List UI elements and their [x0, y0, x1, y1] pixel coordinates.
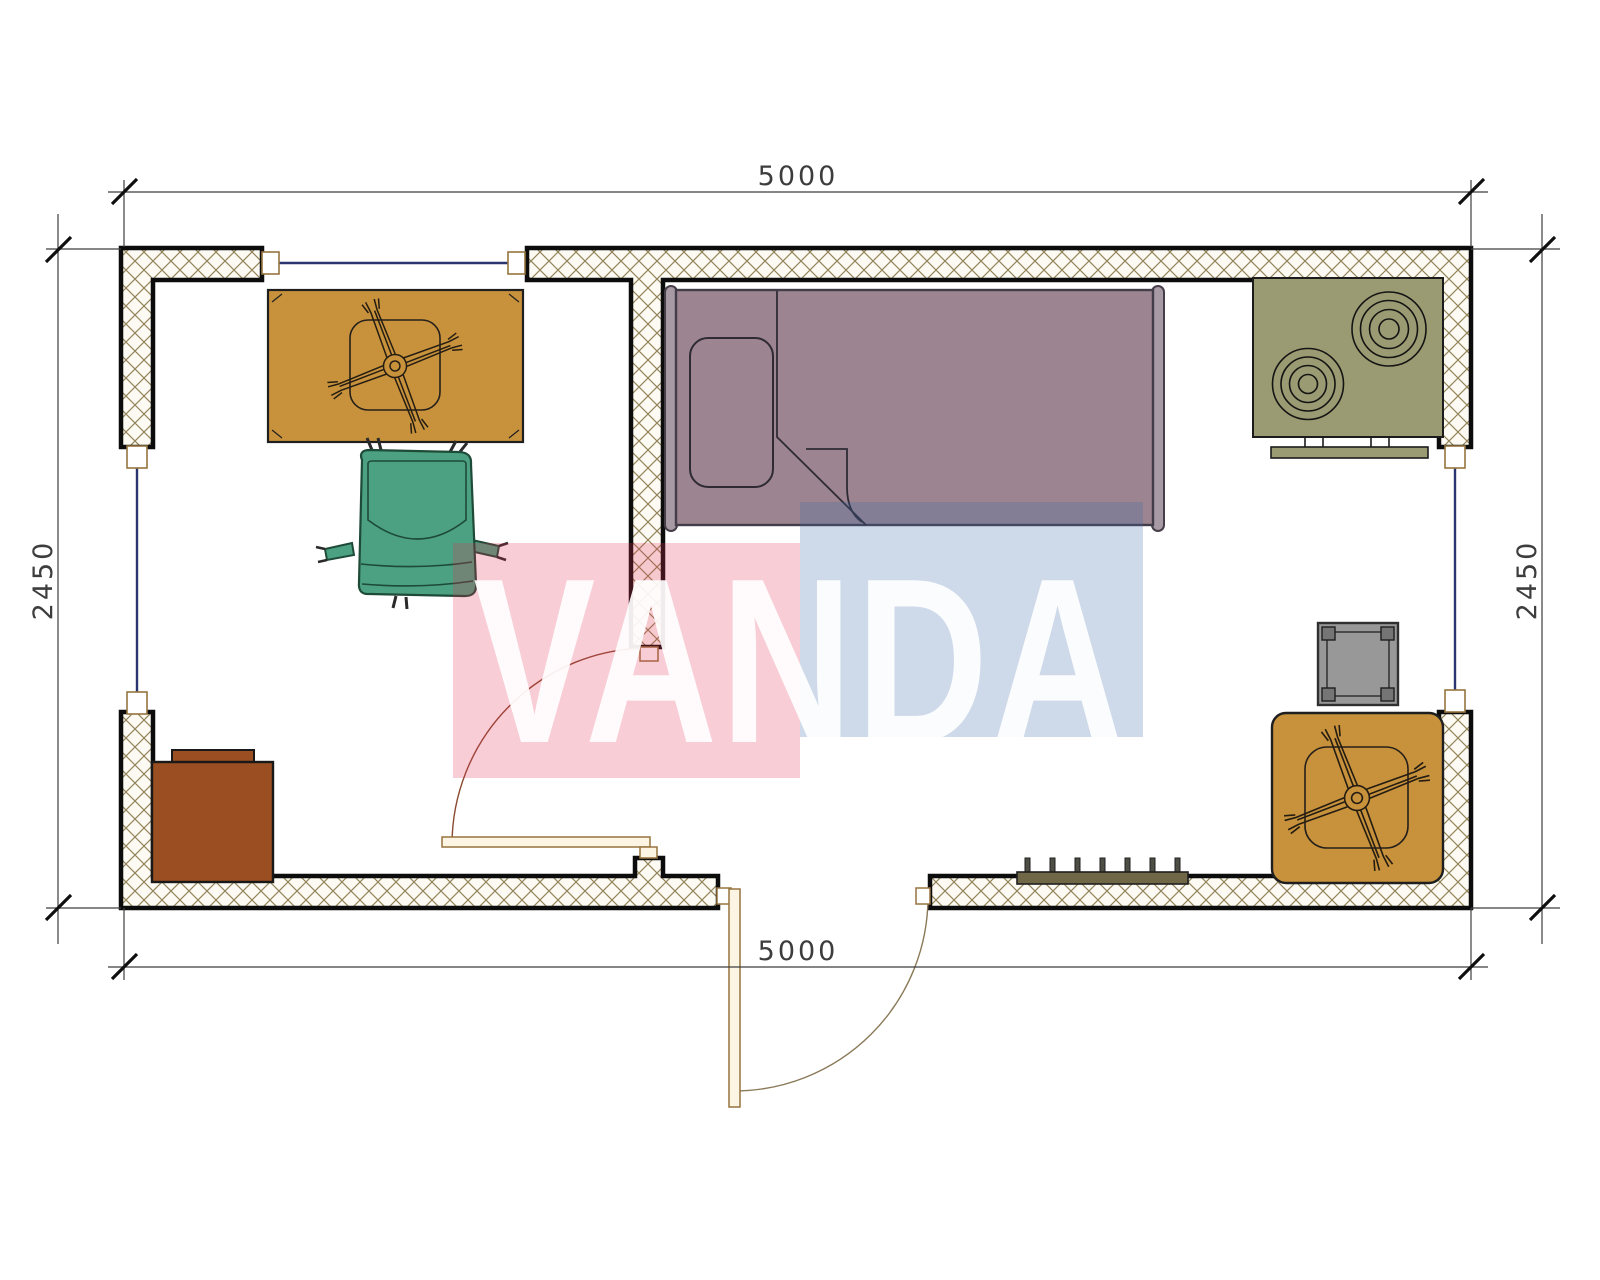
- stove-control-panel: [1271, 447, 1428, 458]
- cabinet-body: [152, 762, 273, 882]
- corner-table: [1259, 700, 1454, 895]
- window-jamb-marker: [127, 446, 147, 468]
- dining-table: [268, 276, 523, 457]
- window-top: [262, 252, 525, 274]
- wall-top-left: [121, 248, 262, 447]
- entrance-door: [717, 888, 930, 1107]
- radiator-body: [1017, 872, 1188, 884]
- radiator: [1017, 858, 1188, 884]
- dimension-label-top: 5000: [758, 161, 839, 192]
- dimension-label-right: 2450: [1512, 540, 1543, 621]
- watermark: VANDA: [453, 502, 1143, 792]
- stove-panel-links: [1305, 437, 1389, 447]
- window-jamb-marker: [508, 252, 525, 274]
- dimension-label-bottom: 5000: [758, 936, 839, 967]
- door-leaf: [729, 889, 740, 1107]
- window-jamb-marker: [1445, 690, 1465, 712]
- chair-armrest-left: [325, 543, 354, 560]
- table-top: [1272, 713, 1443, 883]
- single-bed: [665, 286, 1164, 531]
- bed-mattress: [676, 290, 1153, 525]
- dimension-label-left: 2450: [28, 540, 59, 621]
- door-jamb-marker: [916, 888, 930, 904]
- window-jamb-marker: [1445, 446, 1465, 468]
- window-right: [1445, 446, 1465, 712]
- floor-plan-canvas: 5000 5000 2450 2450 VANDA: [0, 0, 1600, 1280]
- radiator-fins: [1025, 858, 1180, 873]
- cabinet: [152, 750, 273, 882]
- window-jamb-marker: [262, 252, 279, 274]
- side-table: [1318, 623, 1398, 705]
- door-leaf: [442, 837, 650, 847]
- window-jamb-marker: [127, 692, 147, 714]
- stove-cooktop: [1253, 278, 1443, 458]
- watermark-text: VANDA: [473, 529, 1127, 792]
- door-hinge-block: [640, 847, 657, 858]
- table-top: [268, 290, 523, 442]
- window-left: [127, 446, 147, 714]
- floor-plan-drawing: 5000 5000 2450 2450 VANDA: [0, 0, 1600, 1280]
- door-swing-arc: [734, 897, 928, 1091]
